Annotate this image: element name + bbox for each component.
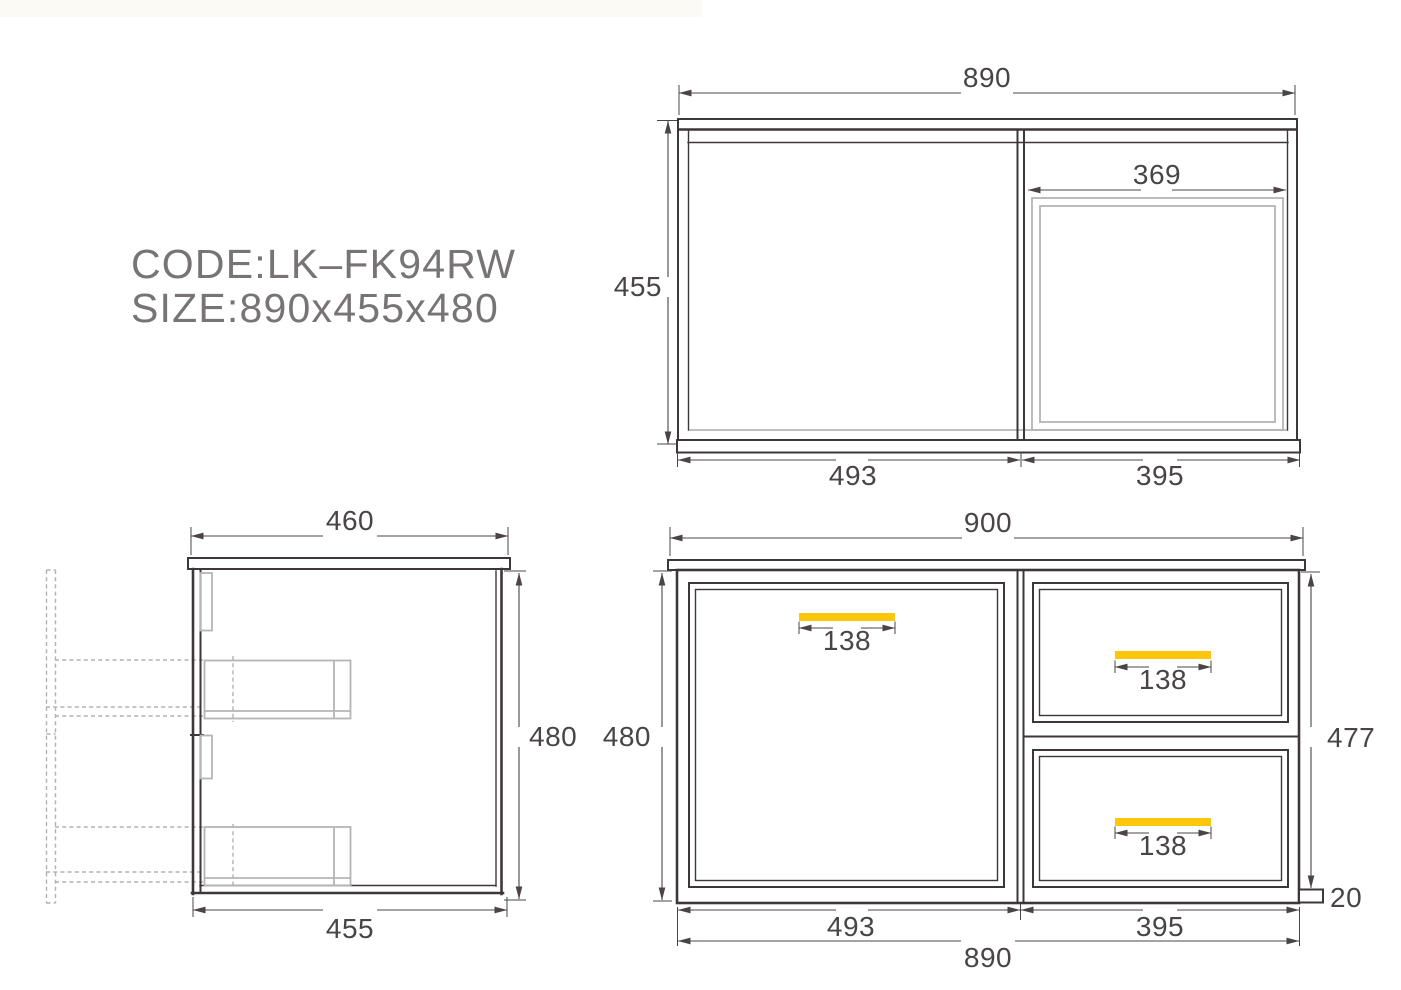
front-view-height-right-label: 477 [1327,722,1375,753]
plinth-tab [1299,890,1323,903]
top-view-depth-label: 455 [614,271,662,302]
top-view-plinth [677,440,1300,453]
top-view-left-section-label: 493 [829,460,877,491]
front-view-height-left-label: 480 [603,721,651,752]
product-code-label: CODE:LK–FK94RW [131,241,516,287]
top-drawer-handle [1115,651,1211,659]
side-view-countertop [188,558,510,569]
bottom-drawer-handle [1115,818,1211,826]
side-view-bottom-width-label: 455 [326,913,374,944]
drawing-sheet: CODE:LK–FK94RW SIZE:890x455x480 890 4 [0,0,1401,990]
top-view-width-label: 890 [963,62,1011,93]
door-handle [799,613,895,621]
door-handle-label: 138 [823,625,871,656]
top-view-right-section-label: 395 [1136,460,1184,491]
sink-width-label: 369 [1133,159,1181,190]
front-view: 900 480 477 20 138 [603,507,1375,973]
product-info: CODE:LK–FK94RW SIZE:890x455x480 [131,241,516,331]
side-view-top-width-label: 460 [326,505,374,536]
front-view-countertop [668,560,1305,570]
top-drawer-handle-label: 138 [1139,664,1187,695]
top-view-outline [678,119,1297,440]
technical-drawing: CODE:LK–FK94RW SIZE:890x455x480 890 4 [0,0,1401,990]
front-view-right-section-label: 395 [1136,911,1184,942]
front-view-bottom-total-label: 890 [964,942,1012,973]
front-view-left-section-label: 493 [827,911,875,942]
plinth-height-label: 20 [1330,882,1362,913]
header-strip [0,0,702,17]
top-view: 890 455 369 493 395 [614,62,1300,491]
side-view-height-label: 480 [529,721,577,752]
front-view-width-label: 900 [964,507,1012,538]
bottom-drawer-handle-label: 138 [1139,830,1187,861]
product-size-label: SIZE:890x455x480 [131,285,499,331]
